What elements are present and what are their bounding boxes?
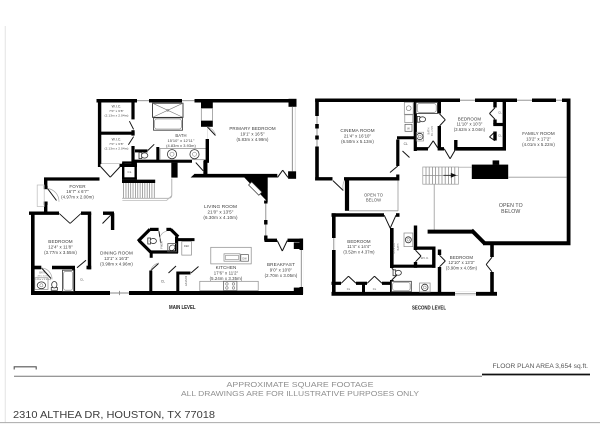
svg-text:16'7" x 6'7": 16'7" x 6'7" bbox=[66, 189, 89, 194]
svg-text:(6.50m x 5.13m): (6.50m x 5.13m) bbox=[341, 139, 374, 144]
svg-text:12'4" x 11'8": 12'4" x 11'8" bbox=[48, 244, 73, 249]
svg-text:(2.70m x 3.05m): (2.70m x 3.05m) bbox=[265, 273, 298, 278]
svg-text:9'0" x 10'0": 9'0" x 10'0" bbox=[270, 267, 293, 272]
svg-text:APPROXIMATE SQUARE FOOTAGE: APPROXIMATE SQUARE FOOTAGE bbox=[227, 380, 374, 389]
svg-text:W.I.C.: W.I.C. bbox=[112, 105, 122, 109]
svg-text:13'1" x 16'3": 13'1" x 16'3" bbox=[104, 256, 129, 261]
svg-text:KITCHEN: KITCHEN bbox=[216, 265, 237, 270]
svg-text:BREAKFAST: BREAKFAST bbox=[267, 262, 295, 267]
svg-text:13'2" x 17'2": 13'2" x 17'2" bbox=[526, 136, 551, 141]
svg-text:(3.52m x 4.37m): (3.52m x 4.37m) bbox=[343, 249, 375, 254]
svg-text:DW: DW bbox=[242, 257, 247, 261]
svg-text:SECOND LEVEL: SECOND LEVEL bbox=[412, 305, 446, 311]
svg-text:DINING ROOM: DINING ROOM bbox=[100, 251, 133, 256]
svg-text:(4.97m x 2.00m): (4.97m x 2.00m) bbox=[61, 195, 94, 200]
svg-text:W: W bbox=[407, 126, 410, 130]
svg-text:(2.13m x 2.04m): (2.13m x 2.04m) bbox=[104, 113, 128, 117]
svg-text:BEDROOM: BEDROOM bbox=[48, 239, 73, 244]
svg-text:CL: CL bbox=[404, 142, 408, 146]
svg-text:17'6" x 11'2": 17'6" x 11'2" bbox=[214, 270, 239, 275]
svg-text:BATH: BATH bbox=[39, 271, 46, 274]
svg-text:BELOW: BELOW bbox=[366, 198, 381, 203]
svg-text:CL: CL bbox=[80, 278, 84, 282]
svg-text:FOYER: FOYER bbox=[69, 184, 86, 189]
svg-text:4'8 x 11'5: 4'8 x 11'5 bbox=[37, 275, 48, 277]
svg-text:(5.24m x 3.35m): (5.24m x 3.35m) bbox=[210, 276, 243, 281]
svg-text:CL: CL bbox=[373, 287, 377, 291]
svg-text:(6.30m x 4.10m): (6.30m x 4.10m) bbox=[203, 215, 238, 220]
svg-text:CINEMA ROOM: CINEMA ROOM bbox=[340, 128, 374, 133]
svg-text:PRIMARY BEDROOM: PRIMARY BEDROOM bbox=[229, 126, 275, 131]
svg-text:(1.42m x 3.47m): (1.42m x 3.47m) bbox=[34, 279, 52, 281]
svg-text:8'1 x 5'0: 8'1 x 5'0 bbox=[431, 126, 434, 136]
svg-text:(2.13m x 2.04m): (2.13m x 2.04m) bbox=[104, 146, 128, 150]
svg-text:2310 ALTHEA DR, HOUSTON, TX 77: 2310 ALTHEA DR, HOUSTON, TX 77018 bbox=[13, 410, 215, 421]
svg-text:CL: CL bbox=[498, 134, 502, 138]
svg-text:(3.98m x 4.96m): (3.98m x 4.96m) bbox=[100, 261, 133, 266]
svg-text:REF: REF bbox=[184, 244, 190, 248]
svg-text:(3.90m x 4.05m): (3.90m x 4.05m) bbox=[446, 265, 478, 270]
svg-text:CL: CL bbox=[347, 287, 351, 291]
svg-text:21'4" x 16'10": 21'4" x 16'10" bbox=[344, 133, 372, 138]
svg-text:(4.83m x 3.93m): (4.83m x 3.93m) bbox=[166, 143, 196, 148]
svg-text:FAMILY ROOM: FAMILY ROOM bbox=[522, 131, 555, 136]
svg-text:W.I.C.: W.I.C. bbox=[421, 256, 429, 260]
svg-text:PWDR: PWDR bbox=[162, 241, 164, 249]
svg-text:7'0" x 6'8": 7'0" x 6'8" bbox=[109, 142, 124, 146]
svg-text:MAIN LEVEL: MAIN LEVEL bbox=[169, 305, 196, 311]
svg-text:21'0" x 13'5": 21'0" x 13'5" bbox=[208, 210, 234, 215]
svg-text:(3.62m x 3.04m): (3.62m x 3.04m) bbox=[454, 127, 486, 132]
svg-text:9'4 x 10'7: 9'4 x 10'7 bbox=[393, 242, 396, 254]
svg-text:W.I.C.: W.I.C. bbox=[112, 138, 122, 142]
svg-text:CL: CL bbox=[161, 280, 165, 284]
svg-text:CL: CL bbox=[127, 170, 131, 174]
svg-text:BELOW: BELOW bbox=[501, 209, 520, 215]
svg-text:7'0" x 6'8": 7'0" x 6'8" bbox=[109, 109, 124, 113]
svg-text:(5.83m x 4.99m): (5.83m x 4.99m) bbox=[237, 137, 269, 142]
svg-text:19'1" x 16'5": 19'1" x 16'5" bbox=[240, 132, 265, 137]
svg-text:CL: CL bbox=[498, 111, 502, 115]
svg-text:(3.77m x 3.55m): (3.77m x 3.55m) bbox=[44, 250, 77, 255]
svg-text:(4.01m x 5.22m): (4.01m x 5.22m) bbox=[522, 142, 555, 147]
svg-text:PANTRY: PANTRY bbox=[184, 276, 187, 287]
svg-text:FLOOR PLAN AREA 3,654 sq.ft.: FLOOR PLAN AREA 3,654 sq.ft. bbox=[493, 363, 589, 370]
svg-text:ALL DRAWINGS ARE FOR ILLUSTRAT: ALL DRAWINGS ARE FOR ILLUSTRATIVE PURPOS… bbox=[181, 389, 419, 398]
svg-text:BATH: BATH bbox=[397, 243, 400, 250]
